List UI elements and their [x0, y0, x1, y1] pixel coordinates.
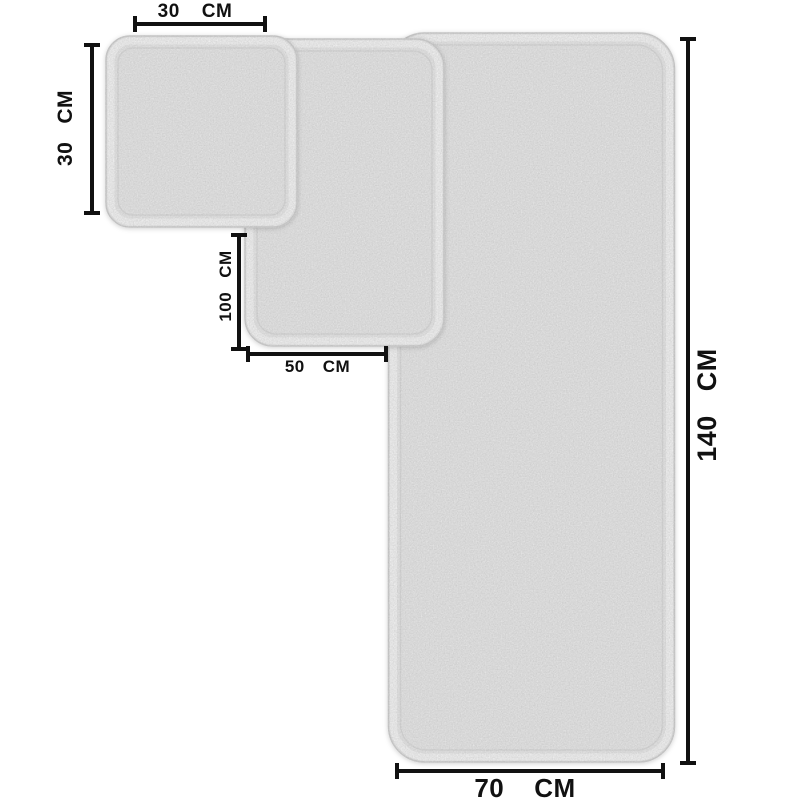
dimension-bar [395, 769, 665, 773]
dimension-bar [237, 233, 241, 351]
dim-value: 30 [54, 142, 78, 166]
dim-value: 100 [216, 292, 236, 322]
dim-value: 70 [474, 773, 504, 800]
dim-label-top-width: 30 CM [125, 2, 265, 22]
tick-mark [231, 347, 247, 351]
dim-unit: CM [534, 773, 575, 800]
tick-mark [84, 211, 100, 215]
dim-unit: CM [202, 1, 233, 23]
dim-unit: CM [323, 357, 350, 377]
towel-small-image [106, 36, 297, 227]
dim-unit: CM [216, 250, 236, 277]
dimension-bar [246, 352, 388, 356]
dim-value: 50 [285, 357, 305, 377]
dim-unit: CM [54, 90, 78, 124]
dim-label-mid-width: 50 CM [250, 357, 385, 377]
dim-label-right-height: 140 CM [690, 310, 724, 500]
dim-line-left-height [84, 43, 100, 215]
dim-label-left-height: 30 CM [53, 58, 79, 198]
dimension-bar [90, 43, 94, 215]
dim-label-bottom-width: 70 CM [405, 775, 645, 800]
towel-size-diagram: 30 CM 30 CM 100 CM 50 CM 140 CM [0, 0, 800, 800]
dim-unit: CM [692, 348, 723, 391]
dim-label-mid-height: 100 CM [215, 226, 237, 346]
tick-mark [661, 763, 665, 779]
tick-mark [680, 761, 696, 765]
dim-value: 140 [692, 415, 723, 462]
dimension-bar [133, 22, 267, 26]
dim-value: 30 [158, 1, 180, 23]
